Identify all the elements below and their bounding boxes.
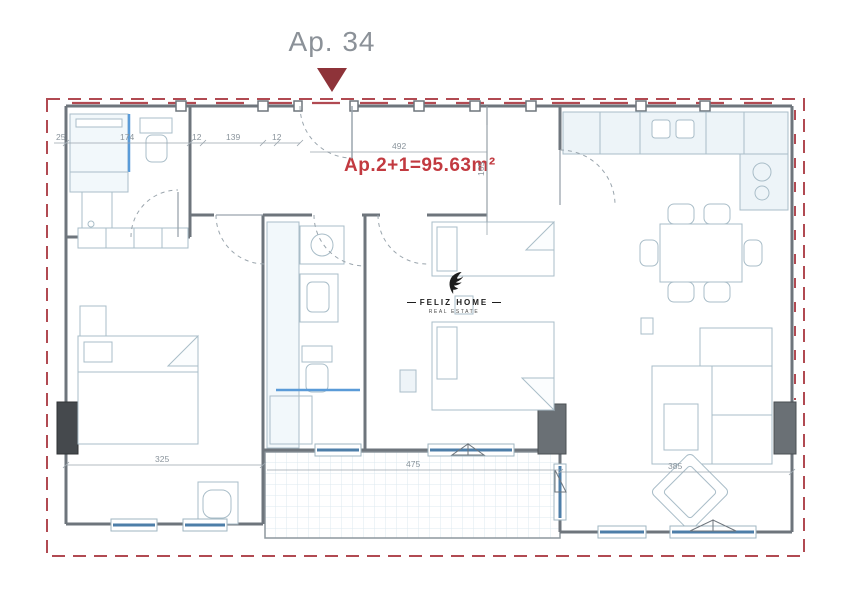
dim-balcony: 475 [406,459,420,469]
toilet-icon [306,364,328,392]
nightstand [80,306,106,336]
agency-logo: FELIZ HOME REAL ESTATE [408,270,500,315]
sink-cabinet [300,274,338,322]
dim-hall-left: 139 [226,132,240,142]
logo-rule-right [492,302,501,303]
dining-chair [704,282,730,302]
pillow [437,227,457,271]
pillow [437,327,457,379]
dining-chair [668,204,694,224]
stool [400,370,416,392]
toilet-icon [146,135,167,162]
sofa-chaise [700,328,772,368]
logo-brand: FELIZ HOME [420,298,488,307]
dim-bedroom-left: 325 [155,454,169,464]
column-middle [538,404,566,454]
dining-chair [744,240,762,266]
dim-hall-depth: 165 [476,162,486,176]
dining-chair [668,282,694,302]
feather-icon [443,270,465,296]
wardrobe [78,228,188,248]
kitchen-counter-right [740,154,788,210]
dim-wall-b: 12 [272,132,282,142]
bedroom-middle [400,222,554,410]
dining-chair [640,240,658,266]
bathroom-middle [267,222,360,448]
entrance-door-swing [300,106,352,158]
dim-wall-a: 12 [192,132,202,142]
logo-rule-left [407,302,416,303]
pillow [84,342,112,362]
logo-tagline: REAL ESTATE [429,309,480,315]
column-left [57,402,78,454]
dim-hall-width: 492 [392,141,406,151]
dining-table [660,224,742,282]
tv-unit [641,318,653,334]
dim-wall-left: 25 [56,132,66,142]
floorplan-page: Ap. 34 Ap.2+1=95.63m² [0,0,855,596]
dining-chair [704,204,730,224]
dim-living: 385 [668,461,682,471]
stove-icon [652,120,670,138]
column-right [774,402,796,454]
stove-icon [676,120,694,138]
chair [203,490,231,518]
coffee-table [664,404,698,450]
dim-bath-width: 174 [120,132,134,142]
bedroom-left [78,228,238,524]
